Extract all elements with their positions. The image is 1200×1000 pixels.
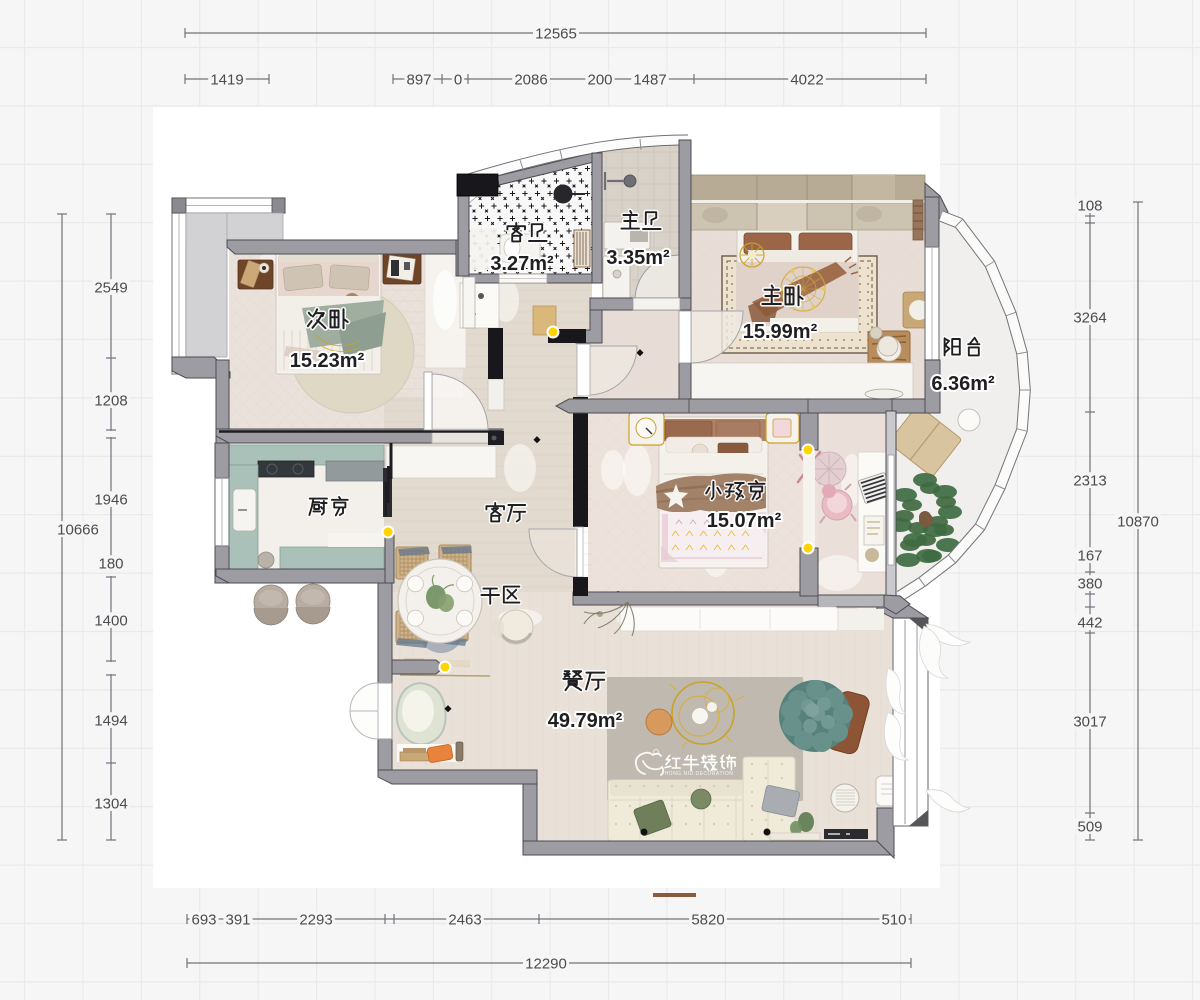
svg-text:6.36m²: 6.36m² bbox=[931, 373, 995, 395]
svg-text:509: 509 bbox=[1077, 818, 1102, 835]
svg-text:15.23m²: 15.23m² bbox=[290, 350, 365, 372]
svg-text:1946: 1946 bbox=[94, 491, 127, 508]
svg-text:10870: 10870 bbox=[1117, 513, 1159, 530]
svg-text:1419: 1419 bbox=[210, 71, 243, 88]
svg-text:391: 391 bbox=[225, 911, 250, 928]
svg-text:380: 380 bbox=[1077, 575, 1102, 592]
svg-text:1494: 1494 bbox=[94, 712, 127, 729]
svg-text:200: 200 bbox=[587, 71, 612, 88]
svg-text:693: 693 bbox=[191, 911, 216, 928]
svg-text:4022: 4022 bbox=[790, 71, 823, 88]
svg-text:2086: 2086 bbox=[514, 71, 547, 88]
svg-text:897: 897 bbox=[406, 71, 431, 88]
svg-text:2463: 2463 bbox=[448, 911, 481, 928]
svg-text:HONG NIU DECORATION: HONG NIU DECORATION bbox=[665, 771, 734, 777]
svg-text:15.99m²: 15.99m² bbox=[743, 321, 818, 343]
svg-text:167: 167 bbox=[1077, 547, 1102, 564]
svg-text:3017: 3017 bbox=[1073, 713, 1106, 730]
svg-text:0: 0 bbox=[454, 71, 462, 88]
svg-text:10666: 10666 bbox=[57, 521, 99, 538]
svg-text:2313: 2313 bbox=[1073, 472, 1106, 489]
svg-text:3264: 3264 bbox=[1073, 309, 1106, 326]
svg-text:1208: 1208 bbox=[94, 392, 127, 409]
svg-text:12565: 12565 bbox=[535, 25, 577, 42]
svg-text:3.35m²: 3.35m² bbox=[606, 247, 670, 269]
svg-text:510: 510 bbox=[881, 911, 906, 928]
svg-text:15.07m²: 15.07m² bbox=[707, 510, 782, 532]
svg-text:2549: 2549 bbox=[94, 279, 127, 296]
svg-text:442: 442 bbox=[1077, 614, 1102, 631]
svg-text:3.27m²: 3.27m² bbox=[490, 253, 554, 275]
svg-text:1487: 1487 bbox=[633, 71, 666, 88]
svg-text:12290: 12290 bbox=[525, 955, 567, 972]
svg-text:1400: 1400 bbox=[94, 612, 127, 629]
svg-text:2293: 2293 bbox=[299, 911, 332, 928]
svg-text:108: 108 bbox=[1077, 197, 1102, 214]
svg-text:1304: 1304 bbox=[94, 795, 127, 812]
svg-text:180: 180 bbox=[98, 555, 123, 572]
svg-text:49.79m²: 49.79m² bbox=[548, 710, 623, 732]
svg-text:5820: 5820 bbox=[691, 911, 724, 928]
